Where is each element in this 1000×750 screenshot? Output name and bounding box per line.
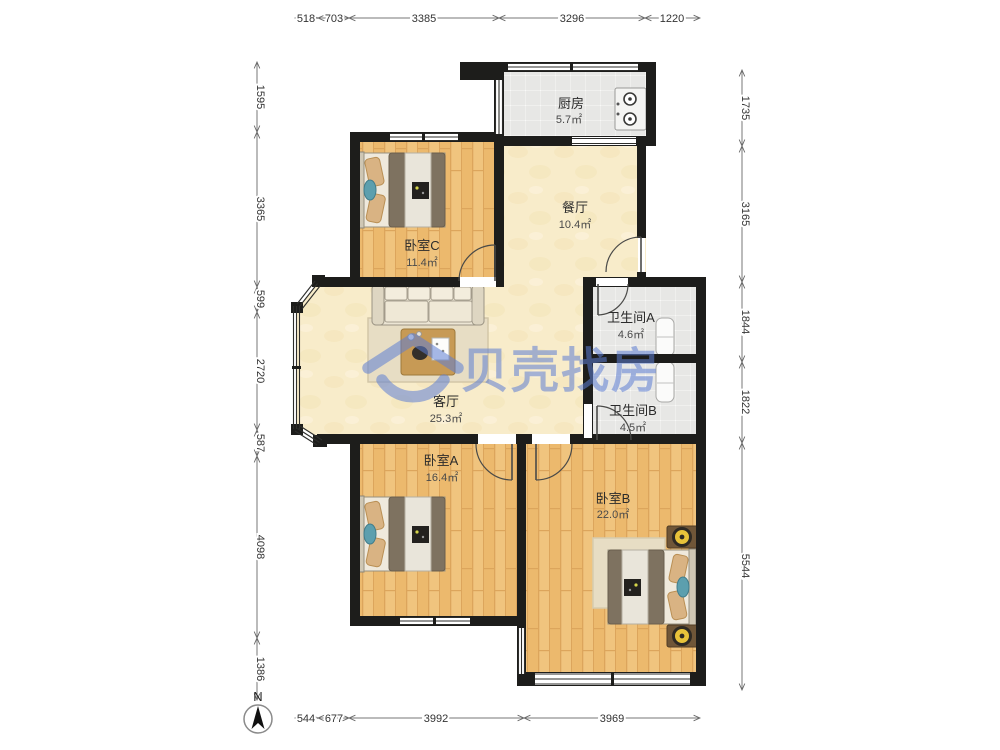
bed-icon [357, 152, 445, 228]
window [292, 306, 301, 429]
room-name: 客厅 [433, 394, 459, 409]
floor-plan-canvas: 厨房 5.7㎡ 餐厅 10.4㎡ 卧室C 11.4㎡ 卫生间A 4.6㎡ 卫生间… [0, 0, 1000, 750]
room-area: 11.4㎡ [406, 256, 438, 269]
dimension-label: 1844 [739, 310, 751, 334]
kitchen-pass-through [572, 137, 636, 145]
window [535, 673, 690, 685]
room-area: 22.0㎡ [597, 508, 629, 521]
room-area: 4.6㎡ [618, 328, 644, 341]
dimension-label: 544 [297, 713, 315, 725]
dimension-label: 2720 [254, 359, 266, 383]
bed-icon [357, 496, 445, 572]
dimension-label: 3992 [424, 713, 448, 725]
room-name: 卫生间B [609, 403, 657, 418]
room-name: 卧室A [424, 453, 459, 468]
nightstand-icon [667, 526, 698, 548]
dimension-label: 3385 [412, 13, 436, 25]
room-name: 卧室C [404, 238, 439, 253]
room-area: 25.3㎡ [430, 412, 462, 425]
watermark-text: 贝壳找房 [461, 345, 661, 398]
nightstand-icon [667, 625, 698, 647]
room-name: 卫生间A [607, 310, 655, 325]
window [518, 628, 525, 674]
room-area: 16.4㎡ [426, 471, 458, 484]
dimension-label: 3296 [560, 13, 584, 25]
dimension-label: 1386 [254, 657, 266, 681]
compass-north-label: N [253, 689, 262, 704]
dimension-label: 4098 [254, 535, 266, 559]
dimension-label: 5544 [739, 554, 751, 578]
dimension-label: 587 [254, 434, 266, 452]
room-area: 4.5㎡ [620, 421, 646, 434]
room-name: 厨房 [558, 96, 584, 111]
dimension-label: 1735 [739, 96, 751, 120]
dimension-label: 3365 [254, 197, 266, 221]
room-name: 卧室B [596, 491, 631, 506]
dimension-label: 3969 [600, 713, 624, 725]
compass: N [244, 689, 272, 733]
dimension-label: 1595 [254, 85, 266, 109]
dimension-label: 1822 [739, 390, 751, 414]
dimension-label: 677 [325, 713, 343, 725]
stove-icon [615, 88, 646, 130]
dimension-label: 1220 [660, 13, 684, 25]
room-area: 10.4㎡ [559, 218, 591, 231]
window [495, 80, 503, 134]
dimension-label: 518 [297, 13, 315, 25]
room-name: 餐厅 [562, 200, 588, 215]
room-area: 5.7㎡ [556, 113, 582, 126]
dimension-label: 599 [254, 290, 266, 308]
sofa-icon [372, 285, 484, 325]
bed-icon [608, 549, 696, 625]
window [508, 63, 638, 71]
window [400, 617, 470, 625]
dimension-label: 3165 [739, 202, 751, 226]
window [390, 133, 458, 141]
dimension-label: 703 [325, 13, 343, 25]
